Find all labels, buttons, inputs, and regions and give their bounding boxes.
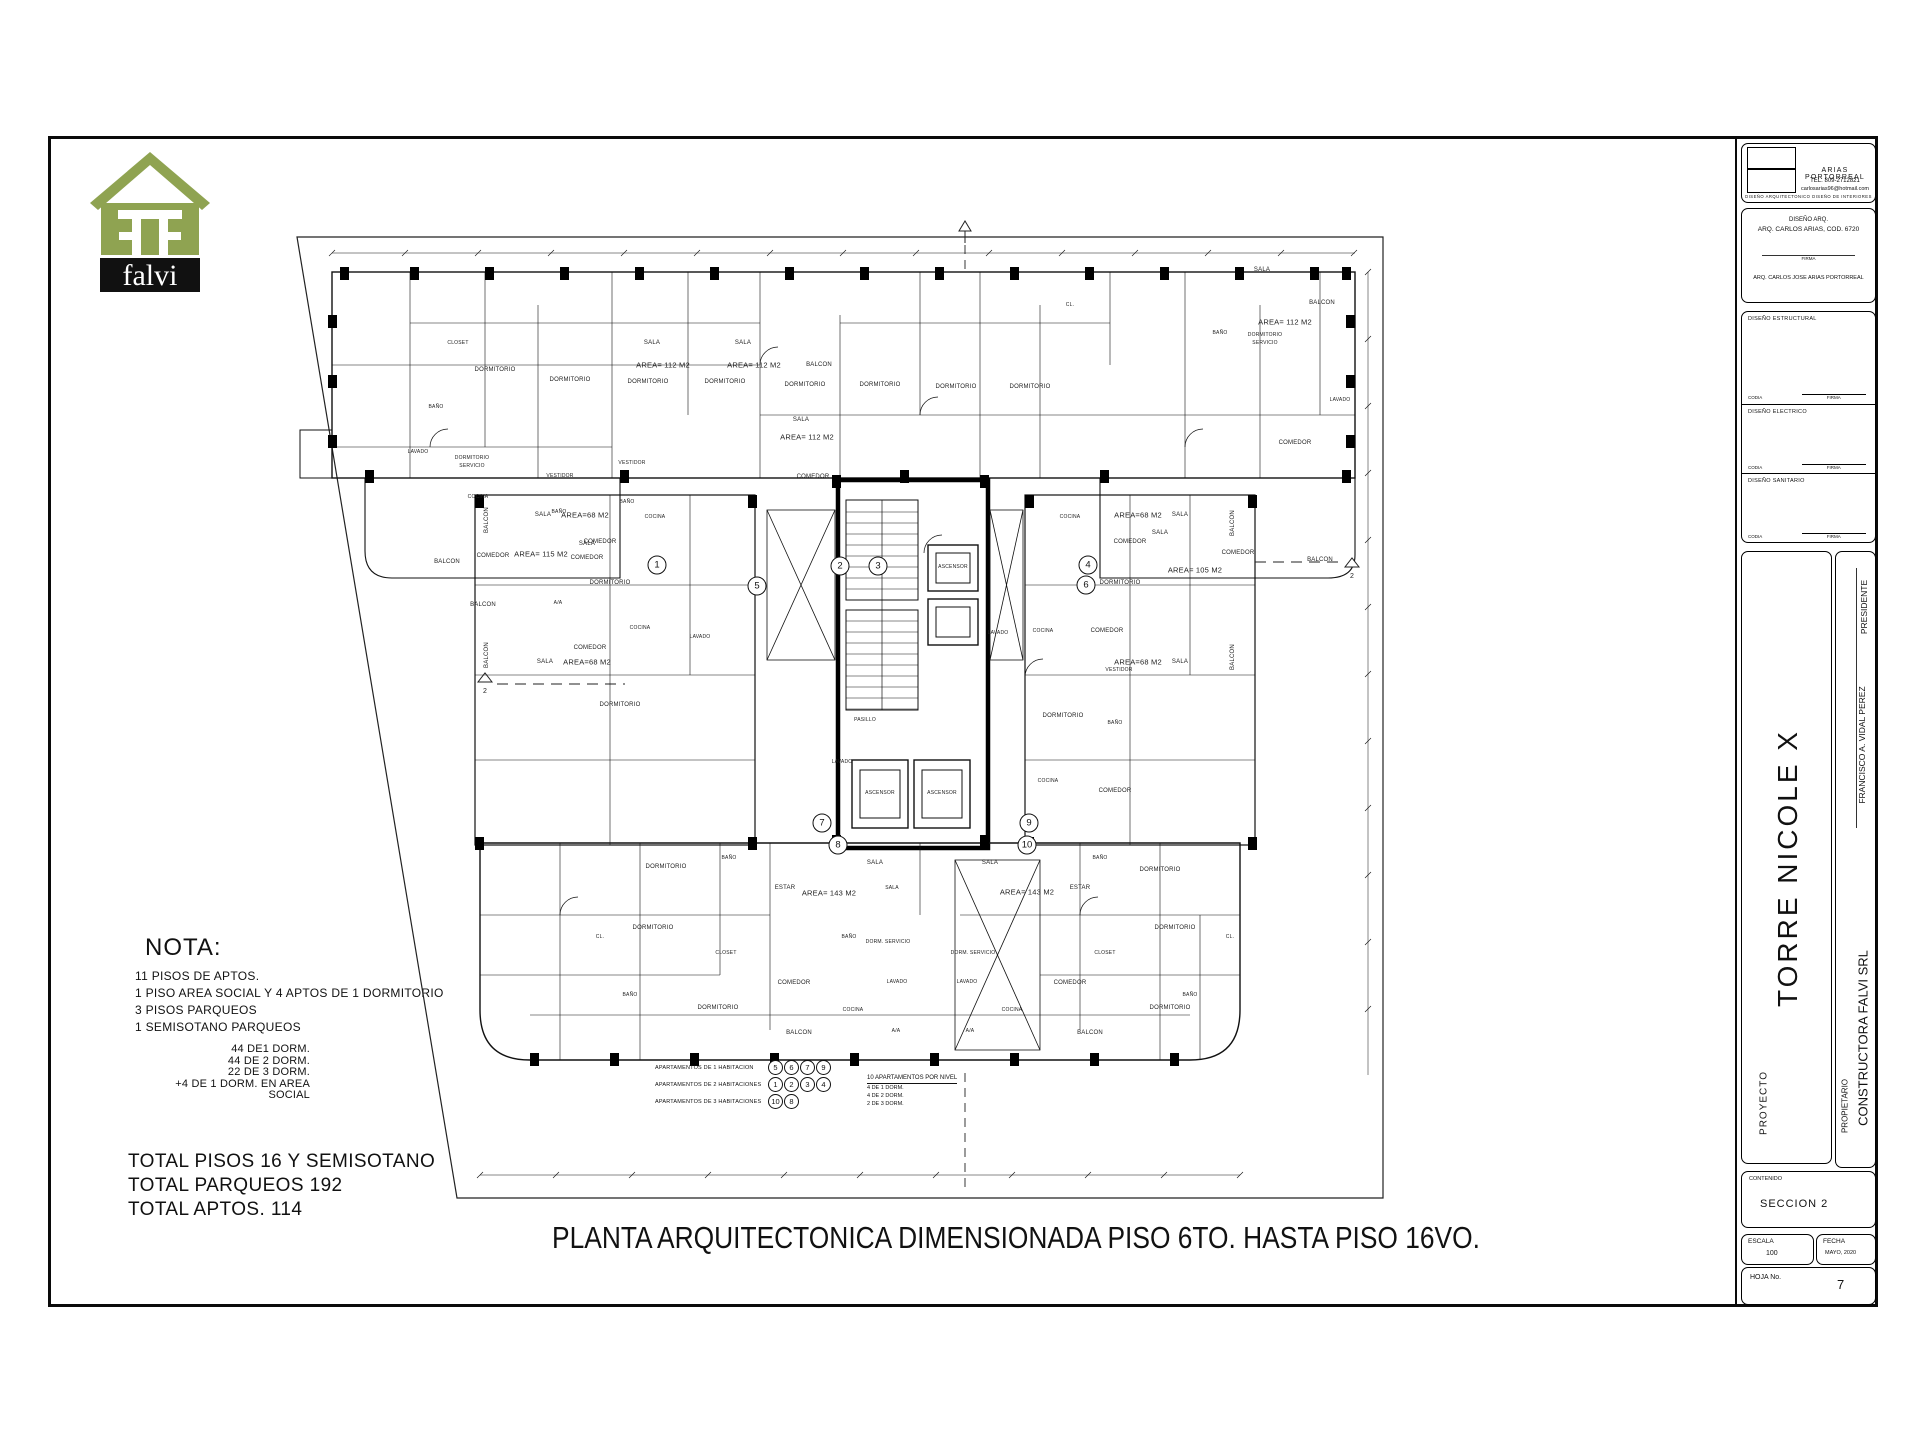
room-label: BALCON <box>484 642 490 668</box>
escala-label: ESCALA <box>1748 1238 1774 1245</box>
room-label: COMEDOR <box>584 539 617 545</box>
title-block: ARIAS PORTORREAL TEL. 809-2712821 carlos… <box>1735 139 1877 1304</box>
room-label: COMEDOR <box>797 474 830 480</box>
unit-number-marker: 5 <box>748 577 767 596</box>
unit-number-marker: 8 <box>829 836 848 855</box>
room-label: BAÑO <box>1213 330 1228 336</box>
legend-summary-title: 10 APARTAMENTOS POR NIVEL <box>867 1075 957 1084</box>
room-label: DORMITORIO <box>1150 1005 1191 1011</box>
section-label: DISEÑO SANITARIO <box>1748 478 1805 484</box>
room-label: DORMITORIO <box>475 367 516 373</box>
legend-row: APARTAMENTOS DE 2 HABITACIONES1234 <box>655 1077 831 1092</box>
room-label: BALCON <box>470 602 496 608</box>
legend-row: APARTAMENTOS DE 3 HABITACIONES108 <box>655 1094 799 1109</box>
codia-label: CODIA <box>1748 534 1762 539</box>
legend-unit-circle: 1 <box>768 1077 783 1092</box>
fecha-label: FECHA <box>1823 1238 1845 1245</box>
room-label: CL. <box>596 934 604 940</box>
room-label: ASCENSOR <box>865 790 895 796</box>
owner-name: FRANCISCO A. VIDAL PEREZ <box>1857 686 1867 803</box>
room-label: DORMITORIO <box>785 382 826 388</box>
room-label: AREA=68 M2 <box>1114 658 1162 667</box>
room-label: COMEDOR <box>778 980 811 986</box>
room-label: BAÑO <box>429 404 444 410</box>
firm-logo-icon <box>1747 147 1796 193</box>
hoja-box: HOJA No. 7 <box>1741 1267 1876 1305</box>
room-label: DORM. SERVICIO <box>866 939 911 945</box>
firma-line: FIRMA <box>1802 394 1866 400</box>
room-label: DORMITORIO <box>860 382 901 388</box>
architectural-sheet: { "sheet": { "logo_brand": "falvi", "mai… <box>0 0 1920 1440</box>
unit-number-marker: 6 <box>1077 576 1096 595</box>
room-label: DORMITORIO <box>936 384 977 390</box>
codia-label: CODIA <box>1748 465 1762 470</box>
room-label: LAVADO <box>887 979 908 985</box>
room-label: DORMITORIO <box>1155 925 1196 931</box>
signature-section: DISEÑO SANITARIOCODIAFIRMA <box>1742 473 1875 543</box>
room-label: BALCON <box>1230 510 1236 536</box>
legend-unit-circle: 10 <box>768 1094 783 1109</box>
room-label: DORMITORIO <box>1248 332 1282 338</box>
room-label: A/A <box>892 1028 901 1034</box>
room-label: BAÑO <box>1183 992 1198 998</box>
contenido-label: CONTENIDO <box>1749 1176 1782 1182</box>
architect-name: ARQ. CARLOS ARIAS, COD. 6720 <box>1742 226 1875 233</box>
signature-section: DISEÑO ELECTRICOCODIAFIRMA <box>1742 404 1875 474</box>
room-label: LAVADO <box>690 634 711 640</box>
room-label: BALCON <box>806 362 832 368</box>
signature-section: DISEÑO ESTRUCTURALCODIAFIRMA <box>1742 312 1875 404</box>
room-label: SERVICIO <box>1252 340 1277 346</box>
room-label: COCINA <box>1002 1007 1023 1013</box>
section-label: DISEÑO ELECTRICO <box>1748 409 1807 415</box>
room-label: VESTIDOR <box>546 473 573 479</box>
room-label: SALA <box>1172 512 1188 518</box>
escala-box: ESCALA 100 <box>1741 1234 1814 1265</box>
room-label: SERVICIO <box>459 463 484 469</box>
room-label: BALCON <box>1307 557 1333 563</box>
room-label: DORMITORIO <box>705 379 746 385</box>
room-label: LAVADO <box>957 979 978 985</box>
legend-unit-circle: 9 <box>816 1060 831 1075</box>
room-label: DORM. SERVICIO <box>951 950 996 956</box>
room-label: BAÑO <box>842 934 857 940</box>
room-label: SALA <box>644 340 660 346</box>
room-label: DORMITORIO <box>600 702 641 708</box>
project-name: TORRE NICOLE X <box>1772 729 1804 1007</box>
unit-number-marker: 10 <box>1018 836 1037 855</box>
room-label: CLOSET <box>1094 950 1115 956</box>
codia-label: CODIA <box>1748 395 1762 400</box>
nota-heading: NOTA: <box>145 934 222 962</box>
room-label: LAVADO <box>1330 397 1351 403</box>
axis-arrow-icon <box>959 221 971 243</box>
unit-number-marker: 9 <box>1020 814 1039 833</box>
legend-summary: 10 APARTAMENTOS POR NIVEL 4 DE 1 DORM.4 … <box>867 1066 997 1108</box>
logo-wordmark: falvi <box>123 259 178 292</box>
proyecto-label: PROYECTO <box>1759 1071 1770 1135</box>
room-label: SALA <box>1254 267 1270 273</box>
firm-email: carlosarias96@hotmail.com <box>1796 186 1874 192</box>
legend-row-label: APARTAMENTOS DE 3 HABITACIONES <box>655 1099 767 1105</box>
room-label: LAVADO <box>408 449 429 455</box>
room-label: COMEDOR <box>1091 628 1124 634</box>
diseno-arq-label: DISEÑO ARQ. <box>1742 217 1875 223</box>
room-label: LAVADO <box>832 759 853 765</box>
room-label: COMEDOR <box>571 555 604 561</box>
room-label: SALA <box>1172 659 1188 665</box>
room-label: BALCON <box>1230 644 1236 670</box>
legend-unit-circle: 7 <box>800 1060 815 1075</box>
legend-row: APARTAMENTOS DE 1 HABITACION5679 <box>655 1060 831 1075</box>
room-label: ESTAR <box>775 885 796 891</box>
room-label: DORMITORIO <box>1140 867 1181 873</box>
room-label: DORMITORIO <box>633 925 674 931</box>
hoja-label: HOJA No. <box>1750 1274 1781 1281</box>
room-label: DORMITORIO <box>1010 384 1051 390</box>
room-label: SALA <box>982 860 998 866</box>
fecha-value: MAYO, 2020 <box>1825 1250 1856 1256</box>
unit-number-marker: 3 <box>869 557 888 576</box>
unit-number-marker: 2 <box>831 557 850 576</box>
room-label: ESTAR <box>1070 885 1091 891</box>
room-label: CL. <box>1066 302 1074 308</box>
room-label: BALCON <box>484 507 490 533</box>
room-label: AREA= 112 M2 <box>727 361 781 370</box>
firma-label: FIRMA <box>1742 256 1875 261</box>
room-label: AREA= 143 M2 <box>1000 888 1054 897</box>
room-label: SALA <box>867 860 883 866</box>
room-label: AREA= 115 M2 <box>514 550 568 559</box>
room-label: DORMITORIO <box>1100 580 1141 586</box>
legend-unit-circle: 3 <box>800 1077 815 1092</box>
room-label: AREA= 105 M2 <box>1168 566 1222 575</box>
room-label: DORMITORIO <box>1043 713 1084 719</box>
legend-row-label: APARTAMENTOS DE 2 HABITACIONES <box>655 1082 767 1088</box>
room-label: VESTIDOR <box>1105 667 1132 673</box>
room-label: SALA <box>735 340 751 346</box>
room-label: COMEDOR <box>1054 980 1087 986</box>
room-label: COMEDOR <box>574 645 607 651</box>
room-label: A/A <box>554 600 563 606</box>
legend-unit-circle: 8 <box>784 1094 799 1109</box>
room-label: AREA=68 M2 <box>561 511 609 520</box>
floor-plan: 2 2 DORMITORIODORMITORIODORMITORIODORMIT… <box>280 215 1390 1215</box>
room-label: COMEDOR <box>1099 788 1132 794</box>
firma-line: FIRMA <box>1802 533 1866 539</box>
contenido-value: SECCION 2 <box>1760 1198 1828 1210</box>
escala-value: 100 <box>1766 1250 1778 1257</box>
section-number: 2 <box>1350 573 1354 580</box>
room-label: BAÑO <box>1093 855 1108 861</box>
room-label: BALCON <box>1077 1030 1103 1036</box>
architect-signature-box: DISEÑO ARQ. ARQ. CARLOS ARIAS, COD. 6720… <box>1741 208 1876 303</box>
room-label: BAÑO <box>623 992 638 998</box>
room-label: A/A <box>966 1028 975 1034</box>
firma-line: FIRMA <box>1802 464 1866 470</box>
room-label: COMEDOR <box>1279 440 1312 446</box>
unit-number-marker: 7 <box>813 814 832 833</box>
room-label: AREA= 112 M2 <box>1258 318 1312 327</box>
room-label: COCINA <box>1033 628 1054 634</box>
owner-title: PRESIDENTE <box>1859 580 1869 634</box>
falvi-logo: falvi <box>88 148 212 294</box>
room-label: CLOSET <box>715 950 736 956</box>
room-label: AREA=68 M2 <box>1114 511 1162 520</box>
house-icon <box>90 152 210 255</box>
room-label: BALCON <box>786 1030 812 1036</box>
legend-unit-circle: 5 <box>768 1060 783 1075</box>
firm-tel: TEL. 809-2712821 <box>1796 178 1874 184</box>
room-label: BAÑO <box>722 855 737 861</box>
section-number: 2 <box>483 688 487 695</box>
room-label: DORMITORIO <box>590 580 631 586</box>
room-label: CLOSET <box>447 340 468 346</box>
room-label: COCINA <box>468 494 489 500</box>
legend-summary-line: 4 DE 2 DORM. <box>867 1093 997 1100</box>
legend-summary-line: 4 DE 1 DORM. <box>867 1085 997 1092</box>
room-label: COCINA <box>1038 778 1059 784</box>
unit-number-marker: 4 <box>1079 556 1098 575</box>
room-label: CL. <box>1226 934 1234 940</box>
room-label: COCINA <box>630 625 651 631</box>
room-label: SALA <box>1152 530 1168 536</box>
room-label: COCINA <box>843 1007 864 1013</box>
room-label: DORMITORIO <box>698 1005 739 1011</box>
legend-summary-line: 2 DE 3 DORM. <box>867 1101 997 1108</box>
room-label: SALA <box>535 512 551 518</box>
sheet-title: PLANTA ARQUITECTONICA DIMENSIONADA PISO … <box>494 1220 1538 1256</box>
room-label: COCINA <box>645 514 666 520</box>
room-label: DORMITORIO <box>628 379 669 385</box>
room-label: AREA=68 M2 <box>563 658 611 667</box>
room-label: COCINA <box>1060 514 1081 520</box>
architect-signer: ARQ. CARLOS JOSE ARIAS PORTORREAL <box>1742 275 1875 281</box>
room-label: AREA= 112 M2 <box>636 361 690 370</box>
hoja-value: 7 <box>1837 1277 1844 1292</box>
section-label: DISEÑO ESTRUCTURAL <box>1748 316 1817 322</box>
room-label: VESTIDOR <box>618 460 645 466</box>
room-label: SALA <box>885 885 899 891</box>
room-label: DORMITORIO <box>455 455 489 461</box>
room-label: ASCENSOR <box>938 564 968 570</box>
room-label: LAVADO <box>988 630 1009 636</box>
room-label: COMEDOR <box>1114 539 1147 545</box>
engineering-signatures-box: DISEÑO ESTRUCTURALCODIAFIRMADISEÑO ELECT… <box>1741 311 1876 543</box>
room-label: PASILLO <box>854 717 876 723</box>
room-label: COMEDOR <box>477 553 510 559</box>
room-label: BALCON <box>1309 300 1335 306</box>
contenido-box: CONTENIDO SECCION 2 <box>1741 1171 1876 1228</box>
room-label: BAÑO <box>1108 720 1123 726</box>
legend-unit-circle: 2 <box>784 1077 799 1092</box>
legend-unit-circle: 6 <box>784 1060 799 1075</box>
legend-unit-circle: 4 <box>816 1077 831 1092</box>
unit-number-marker: 1 <box>648 556 667 575</box>
room-label: BALCON <box>434 559 460 565</box>
firm-tagline: DISEÑO ARQUITECTONICO DISEÑO DE INTERIOR… <box>1742 194 1875 199</box>
fecha-box: FECHA MAYO, 2020 <box>1816 1234 1876 1265</box>
room-label: AREA= 112 M2 <box>780 433 834 442</box>
room-label: BAÑO <box>620 499 635 505</box>
room-label: COMEDOR <box>1222 550 1255 556</box>
propietario-label: PROPIETARIO <box>1841 1079 1850 1133</box>
room-label: SALA <box>793 417 809 423</box>
room-label: AREA= 143 M2 <box>802 889 856 898</box>
room-label: DORMITORIO <box>550 377 591 383</box>
room-label: ASCENSOR <box>927 790 957 796</box>
firm-card: ARIAS PORTORREAL TEL. 809-2712821 carlos… <box>1741 143 1876 203</box>
room-label: SALA <box>537 659 553 665</box>
owner-company: CONSTRUCTORA FALVI SRL <box>1856 950 1871 1126</box>
legend-row-label: APARTAMENTOS DE 1 HABITACION <box>655 1065 767 1071</box>
room-label: DORMITORIO <box>646 864 687 870</box>
plan-legend: APARTAMENTOS DE 1 HABITACION5679APARTAME… <box>655 1060 1075 1150</box>
